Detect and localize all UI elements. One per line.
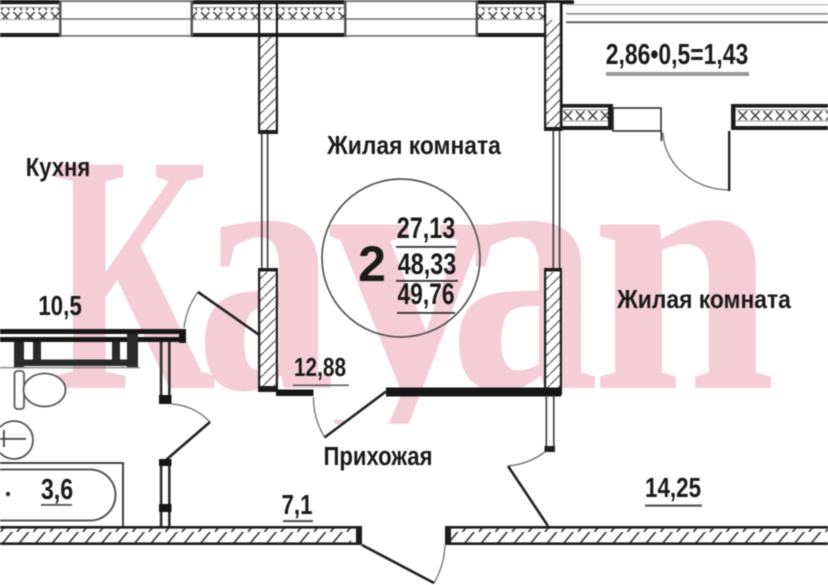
svg-text:K: K [52, 85, 217, 462]
svg-text:a: a [449, 71, 599, 465]
svg-text:2: 2 [358, 236, 386, 292]
svg-text:48,33: 48,33 [398, 247, 457, 280]
svg-text:14,25: 14,25 [645, 473, 701, 504]
svg-text:Кухня: Кухня [26, 153, 91, 182]
svg-text:12,88: 12,88 [294, 353, 346, 382]
svg-text:Прихожая: Прихожая [324, 442, 433, 471]
svg-text:7,1: 7,1 [281, 490, 312, 521]
svg-text:3,6: 3,6 [41, 472, 73, 505]
svg-text:Жилая комната: Жилая комната [326, 132, 501, 161]
svg-text:27,13: 27,13 [397, 211, 456, 244]
svg-text:2,86•0,5=1,43: 2,86•0,5=1,43 [606, 37, 748, 70]
svg-text:Жилая комната: Жилая комната [616, 286, 791, 315]
svg-text:10,5: 10,5 [38, 291, 82, 322]
svg-text:49,76: 49,76 [397, 277, 454, 311]
